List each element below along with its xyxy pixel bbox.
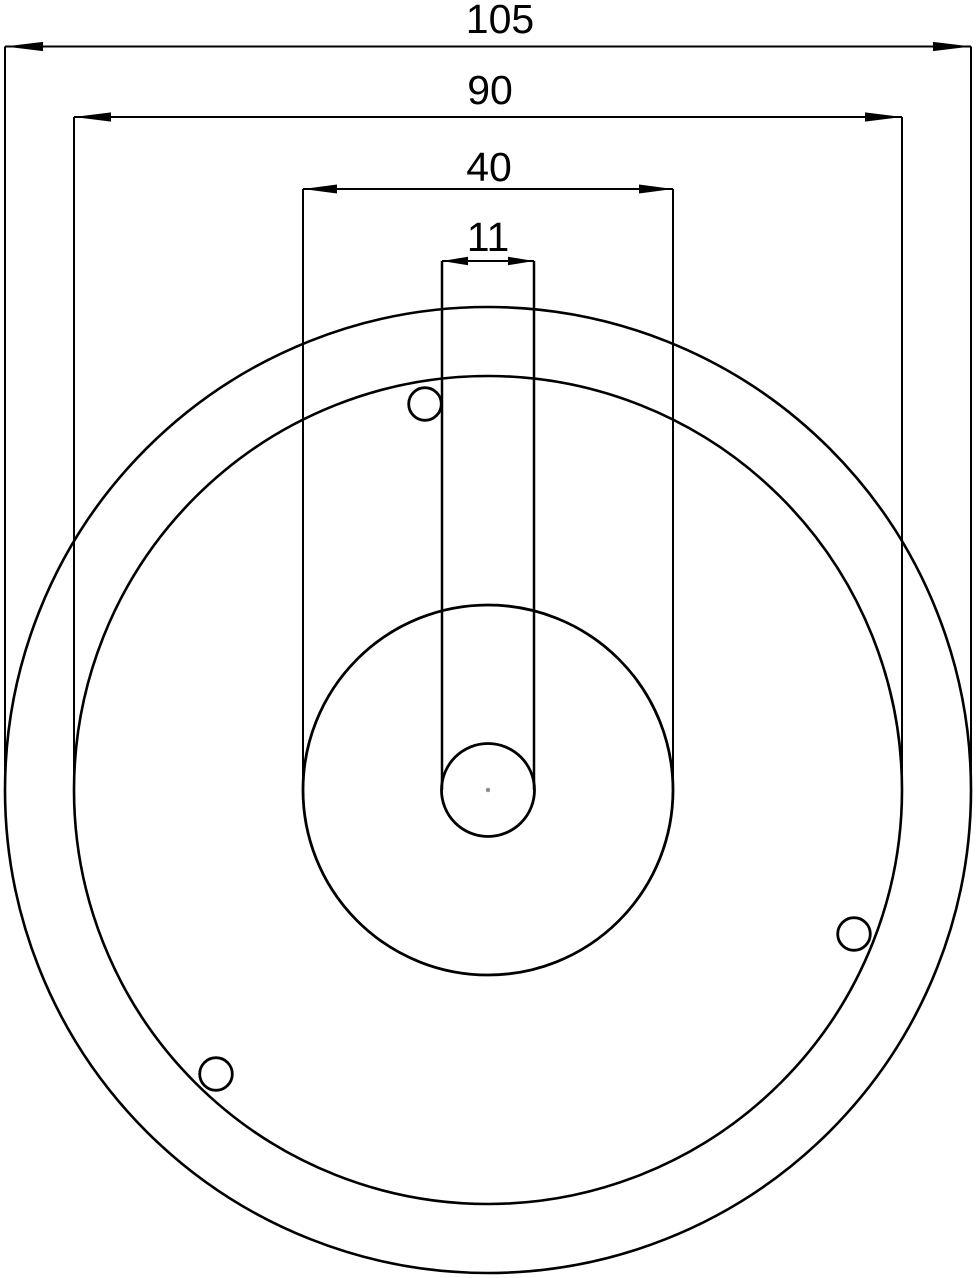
dim-40-arrow-right bbox=[639, 185, 673, 194]
mounting-hole-top bbox=[409, 388, 442, 421]
dim-105-arrow-right bbox=[933, 42, 971, 51]
dim-11-label: 11 bbox=[467, 214, 510, 260]
dim-11-arrow-left bbox=[442, 257, 468, 265]
dim-90-arrow-right bbox=[865, 112, 902, 121]
dim-90-arrow-left bbox=[74, 112, 111, 121]
dim-105-label: 105 bbox=[466, 0, 534, 42]
mounting-hole-right bbox=[838, 918, 871, 951]
dim-40-label: 40 bbox=[466, 144, 512, 190]
technical-drawing-sheet: 105904011 bbox=[0, 0, 976, 1278]
dim-90-label: 90 bbox=[467, 67, 513, 113]
dim-105-arrow-left bbox=[5, 42, 43, 51]
center-mark bbox=[486, 788, 490, 792]
dim-40-arrow-left bbox=[303, 185, 337, 194]
mounting-hole-bottom-left bbox=[200, 1058, 233, 1091]
dim-11-arrow-right bbox=[508, 257, 534, 265]
flange-dimension-drawing: 105904011 bbox=[0, 0, 976, 1278]
